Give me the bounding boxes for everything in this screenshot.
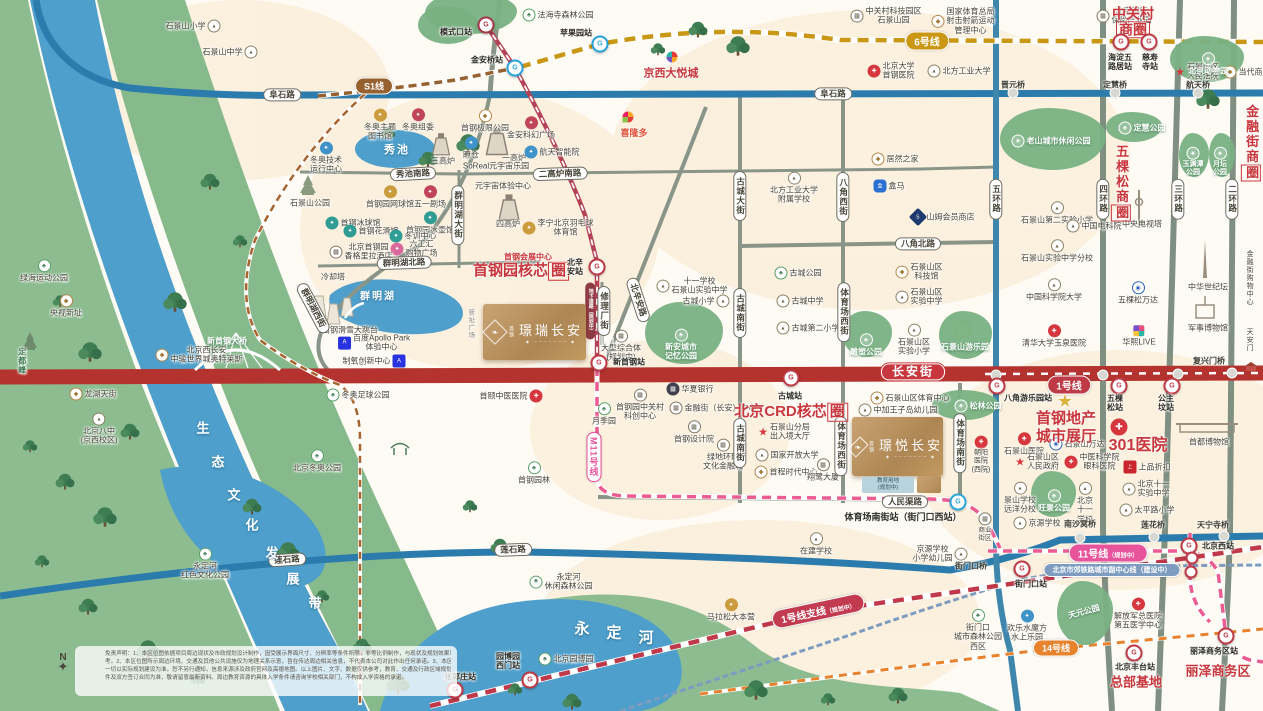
park-area bbox=[418, 6, 478, 44]
poi-新址广场: 新址广场 bbox=[466, 309, 474, 339]
station-icon-园博园西门站: G bbox=[522, 672, 539, 689]
poi-山姆会员商店: S山姆会员商店 bbox=[912, 211, 975, 224]
poi-金融街购物中心: 金融街购物中心 bbox=[1245, 250, 1253, 306]
disclaimer-line: 考。2、本区位图所示周边环境、交通及其他公共设施仅为地理关系示意，旨在传达周边相… bbox=[105, 658, 451, 666]
metro-line-badge-6号线: 6号线 bbox=[905, 32, 949, 51]
poi-label: 永定河红色文化公园 bbox=[181, 562, 229, 581]
poi-label: 石景山区体育中心 bbox=[886, 393, 950, 402]
poi-label: 中国电科院 bbox=[1082, 221, 1122, 230]
station-label-北京丰台站: 北京丰台站 bbox=[1115, 662, 1155, 671]
poi-龙湖天街: ◆龙湖天街 bbox=[70, 388, 117, 401]
poi-label: 五一剧场 bbox=[414, 199, 446, 208]
station-label-北辛安站: 北辛安站 bbox=[567, 258, 583, 276]
poi-军事博物馆: 军事博物馆 bbox=[1188, 323, 1228, 332]
poi-石景山分局: ★石景山分局出入境大厅 bbox=[758, 423, 810, 442]
venue-icon: ◆ bbox=[755, 466, 768, 479]
flower-icon bbox=[623, 112, 634, 123]
poi-制氧创新中心: 制氧创新中心A bbox=[343, 355, 406, 368]
tree-icon: ♣ bbox=[327, 389, 340, 402]
poi-冬奥足球公园: ♣冬奥足球公园 bbox=[327, 389, 390, 402]
treeW-icon: ♣ bbox=[1012, 135, 1025, 148]
land-use-box bbox=[917, 476, 941, 493]
poi-label: 石景山公园 bbox=[290, 198, 330, 207]
river-name-char: 永 bbox=[574, 618, 589, 639]
road-label-八角北路: 八角北路 bbox=[895, 237, 941, 250]
river-name-char: 定 bbox=[606, 622, 621, 643]
road-label-群明湖西街: 群明湖西街 bbox=[294, 281, 331, 335]
poi-商业: ▦商业街区 bbox=[979, 512, 992, 541]
disclaimer-line: 免责声明：1、本区位图依据项目周边现状及市政规划设计制作，因受展示界面尺寸、分辨… bbox=[105, 650, 451, 658]
road-label-北辛安路: 北辛安路 bbox=[625, 276, 652, 324]
tree-icon: ♣ bbox=[528, 461, 541, 474]
venue-icon: ◆ bbox=[872, 153, 885, 166]
poi-label: 京源学校 bbox=[1029, 518, 1061, 527]
bldg-icon: ▦ bbox=[851, 10, 864, 23]
poi-label: 老山城市休闲公园 bbox=[1027, 136, 1091, 145]
poi-label: 国家体育总局射击射箭运动管理中心 bbox=[947, 7, 995, 35]
station-label-园博园西门站: 园博园西门站 bbox=[496, 652, 520, 670]
station-icon-公主坟站: G bbox=[1164, 378, 1181, 395]
station-label-街门口站: 街门口站 bbox=[1015, 579, 1047, 588]
venue-icon: ◆ bbox=[70, 388, 83, 401]
tree-icon: ♣ bbox=[199, 548, 212, 561]
station-icon-副中心线站2 bbox=[1185, 566, 1198, 579]
poi-label: 金安科幻广场 bbox=[507, 130, 555, 139]
poi-北京园博园: ♣北京园博园 bbox=[539, 653, 594, 666]
treeW-icon: ♣ bbox=[955, 400, 968, 413]
poi-景山学校: ▴景山学校远洋分校 bbox=[1004, 482, 1036, 515]
poi-label: 北京冬奥公园 bbox=[293, 463, 341, 472]
bridge-label-街门口桥: 街门口桥 bbox=[955, 561, 987, 572]
disclaimer-line: 一切以实际规划建设为准，恕不另行通知，信息来源涉及政府官网及高德地图。以上图片、… bbox=[105, 666, 451, 674]
metro-line-badge-北京市郊铁路城市副中心线（建设中）: 北京市郊铁路城市副中心线（建设中） bbox=[1044, 563, 1181, 577]
poi-label: 新安城市记忆公园 bbox=[665, 343, 697, 362]
poi-label: 雕塑公园 bbox=[850, 347, 882, 356]
poi-label: 中关村科技园区石景山园 bbox=[866, 7, 922, 26]
hosp-icon: ✚ bbox=[530, 390, 543, 403]
hosp-icon: ✚ bbox=[1048, 324, 1061, 337]
baidu-icon: A bbox=[338, 337, 351, 350]
wanda-icon: ◉ bbox=[1132, 281, 1145, 294]
poi-首钢极限公园: ◆首钢极限公园 bbox=[461, 109, 509, 132]
poi-玉渊潭: ♣玉渊潭公园 bbox=[1183, 147, 1204, 178]
treeW-icon: ♣ bbox=[860, 333, 873, 346]
station-label-新首钢站: 新首钢站 bbox=[613, 357, 645, 366]
road-label-秀池南路: 秀池南路 bbox=[390, 166, 437, 182]
poi-label: 月坛公园 bbox=[1213, 161, 1227, 178]
poi-label: 古城公园 bbox=[790, 268, 822, 277]
station-icon-五棵松站: G bbox=[1111, 378, 1128, 395]
poi-label: 中医科学院眼科医院 bbox=[1080, 453, 1120, 472]
poi-label: 石景山小学 bbox=[166, 21, 206, 30]
redv-icon: ✦ bbox=[424, 185, 437, 198]
road-label-八角西街: 八角西街 bbox=[836, 172, 849, 222]
poi-永定河: ♣永定河红色文化公园 bbox=[181, 548, 229, 581]
poi-label: 旺景公园 bbox=[1038, 503, 1070, 512]
poi-元宇宙体验中心: 元宇宙体验中心 bbox=[475, 181, 531, 190]
hosp-icon: ✚ bbox=[1065, 456, 1078, 469]
poi-定慧公园: ♣定慧公园 bbox=[1119, 122, 1166, 135]
gold-star-icon: ★ bbox=[1058, 393, 1071, 410]
school-icon: ▴ bbox=[92, 413, 105, 426]
park-area bbox=[939, 311, 992, 359]
station-label-北京西站: 北京西站 bbox=[1202, 541, 1234, 550]
star-icon: ★ bbox=[1175, 66, 1185, 79]
poi-label: 首钢园中关村科创中心 bbox=[616, 403, 664, 422]
venue-icon: ◆ bbox=[479, 109, 492, 122]
poi-上品折扣: 上上品折扣 bbox=[1124, 461, 1171, 474]
school-icon: ▴ bbox=[859, 404, 872, 417]
teal-icon: ✦ bbox=[424, 211, 437, 224]
poi-太平路小学: ▴太平路小学 bbox=[1120, 504, 1175, 517]
poi-金安科幻广场: ✦金安科幻广场 bbox=[507, 116, 555, 139]
bldg-icon: ▦ bbox=[330, 246, 343, 259]
poi-label: 金融街购物中心 bbox=[1245, 250, 1253, 306]
treeW-icon: ♣ bbox=[1187, 147, 1200, 160]
bldg-icon: ▦ bbox=[817, 458, 830, 471]
poi-马拉松大本营: ✦马拉松大本营 bbox=[707, 598, 755, 621]
property-card-璟悦长安: ❧首钢璟悦长安◆ ─────── ◆ bbox=[852, 417, 943, 476]
bluev-icon: ✦ bbox=[465, 136, 478, 149]
poi-永定河: ♣永定河休闲森林公园 bbox=[530, 573, 593, 592]
poi-SoReal元宇宙乐园: SoReal元宇宙乐园 bbox=[463, 161, 529, 170]
tree-icon: ♣ bbox=[311, 449, 324, 462]
hosp-icon: ✚ bbox=[1132, 598, 1145, 611]
road-label-二高炉南路: 二高炉南路 bbox=[533, 166, 588, 181]
poi-首都博物馆: 首都博物馆 bbox=[1189, 437, 1229, 446]
poi-label: 十一学校石景山实验中学 bbox=[672, 277, 728, 296]
station-icon-副中心线站 bbox=[1186, 552, 1199, 565]
water-label-秀池: 秀池 bbox=[384, 141, 410, 157]
leaf-logo-icon: ❧ bbox=[482, 319, 507, 344]
bldg-icon: ▦ bbox=[615, 330, 628, 343]
poi-label: 北京园博园 bbox=[554, 654, 594, 663]
school-icon: ▴ bbox=[908, 324, 921, 337]
school-icon: ▴ bbox=[1014, 482, 1027, 495]
metro-line-badge-M11号线: M11号线 bbox=[587, 432, 602, 482]
poi-label: 北京大学首钢医院 bbox=[883, 62, 915, 81]
poi-pinwheel bbox=[667, 52, 678, 63]
metro-line-badge-14号线: 14号线 bbox=[1033, 640, 1079, 657]
poi-label: 冬奥技术运行中心 bbox=[310, 156, 342, 175]
redv-icon: ✦ bbox=[525, 116, 538, 129]
school-icon: ▴ bbox=[1048, 278, 1061, 291]
bank-icon: ▦ bbox=[667, 383, 680, 396]
station-icon-街门口站: G bbox=[1014, 561, 1031, 578]
poi-label: 首钢极限公园 bbox=[461, 123, 509, 132]
road-label-体育场南街: 体育场南街 bbox=[953, 413, 966, 473]
tree-icon: ♣ bbox=[38, 259, 51, 272]
road-junction-dot bbox=[1098, 370, 1109, 381]
poi-label: 玉渊潭公园 bbox=[1183, 161, 1204, 178]
bluev-icon: ✦ bbox=[1021, 610, 1034, 623]
poi-label: 山姆会员商店 bbox=[927, 212, 975, 221]
road-junction-dot bbox=[1227, 368, 1238, 379]
poi-旺景公园: ♣旺景公园 bbox=[1038, 489, 1070, 512]
poi-label: 中加王子岛幼儿园 bbox=[874, 405, 938, 414]
poi-label: 中国科学院大学 bbox=[1026, 292, 1082, 301]
commercial-zone-京西大悦城: 京西大悦城 bbox=[644, 68, 699, 81]
poi-label: 北京动物园 bbox=[1188, 66, 1228, 75]
station-label-金安桥站: 金安桥站 bbox=[471, 55, 503, 64]
school-icon: ▴ bbox=[788, 172, 801, 185]
poi-北京动物园: ♣北京动物园 bbox=[1188, 52, 1228, 75]
road-label-人民渠路: 人民渠路 bbox=[882, 495, 928, 508]
poi-首颐中医医院: 首颐中医医院✚ bbox=[480, 390, 543, 403]
bldg-icon: ▦ bbox=[688, 420, 701, 433]
bldg-icon: ▦ bbox=[670, 402, 683, 415]
poi-label: 元宇宙体验中心 bbox=[475, 181, 531, 190]
poi-松林公园: ♣松林公园 bbox=[955, 400, 1002, 413]
poi-label: SoReal元宇宙乐园 bbox=[463, 161, 529, 170]
station-icon-苹果园站: G bbox=[592, 36, 609, 53]
leaf-logo-icon: ❧ bbox=[847, 436, 868, 457]
poi-label: 松林公园 bbox=[970, 401, 1002, 410]
poi-石景山小学: 石景山小学▴ bbox=[166, 20, 221, 33]
poi-首钢园林: ♣首钢园林 bbox=[518, 461, 550, 484]
eco-corridor-char: 展 bbox=[286, 569, 299, 588]
poi-label: 绿海运动公园 bbox=[20, 273, 68, 282]
poi-label: 太平路小学 bbox=[1135, 505, 1175, 514]
poi-label: 制氧创新中心 bbox=[343, 356, 391, 365]
poi-新首钢大桥: 新首钢大桥 bbox=[207, 336, 247, 345]
huaxi-icon bbox=[1134, 325, 1145, 336]
poi-label: 石景山分局出入境大厅 bbox=[770, 423, 810, 442]
road-label-长安街: 长安街 bbox=[881, 363, 945, 380]
poi-李宁北京羽毛球: ✦李宁北京羽毛球体育馆 bbox=[523, 219, 594, 238]
poi-冬奥技术: ✦冬奥技术运行中心 bbox=[310, 142, 342, 175]
station-icon-北京丰台站: G bbox=[1126, 645, 1143, 662]
poi-label: 四高炉 bbox=[496, 219, 520, 228]
poi-label: 清华大学玉泉医院 bbox=[1022, 338, 1086, 347]
poi-绿海运动公园: ♣绿海运动公园 bbox=[20, 259, 68, 282]
gold-icon: ✦ bbox=[725, 598, 738, 611]
tree-icon: ♣ bbox=[523, 9, 536, 22]
road-label-修理厂街: 修理厂街 bbox=[597, 286, 610, 336]
poi-月季园: ♣月季园 bbox=[592, 402, 616, 425]
bldg-icon: ▦ bbox=[979, 512, 992, 525]
hosp-icon: ✚ bbox=[868, 65, 881, 78]
poi-label: 李宁北京羽毛球体育馆 bbox=[538, 219, 594, 238]
road-junction-dot bbox=[1110, 88, 1121, 99]
poi-label: 定都峰 bbox=[17, 348, 26, 375]
poi-冬奥主题: ✦冬奥主题图书馆 bbox=[364, 109, 396, 142]
poi-京源学校: ▴京源学校 bbox=[1014, 517, 1061, 530]
venue-icon: ◆ bbox=[932, 15, 945, 28]
road-label-阜石路: 阜石路 bbox=[263, 88, 301, 101]
road-junction-dot bbox=[1219, 531, 1230, 542]
school-icon: ▴ bbox=[657, 280, 670, 293]
poi-label: 上品折扣 bbox=[1139, 462, 1171, 471]
metro-line-badge-11号线: 11号线（规划中） bbox=[1069, 544, 1148, 563]
poi-北京十一: ▴北京十一实验中学 bbox=[1123, 480, 1170, 499]
poi-flower bbox=[623, 112, 634, 123]
poi-label: 天安门 bbox=[1245, 328, 1253, 352]
poi-label: 石景山中学 bbox=[203, 47, 243, 56]
pinwheel-icon bbox=[667, 52, 678, 63]
eco-corridor-char: 带 bbox=[308, 593, 321, 612]
disclaimer-line: 件及双方签订合同为准，敬请留意最新资料。周边教育资源的具体入学条件请咨询学校相关… bbox=[105, 674, 451, 682]
poi-古城小学: 古城小学▴ bbox=[683, 295, 730, 308]
poi-label: 北京十一实验中学 bbox=[1138, 480, 1170, 499]
commercial-zone-首钢园核芯: 首钢园核芯圈 bbox=[473, 262, 569, 281]
station-icon-北辛安站: G bbox=[589, 259, 606, 276]
poi-北京八中: ▴北京八中(京西校区) bbox=[80, 413, 117, 446]
poi-label: 当代商城 bbox=[1239, 67, 1263, 76]
treeW-icon: ♣ bbox=[1214, 147, 1227, 160]
poi-雕塑公园: ♣雕塑公园 bbox=[850, 333, 882, 356]
poi-label: 古城中学 bbox=[792, 296, 824, 305]
poi-十一学校: ▴十一学校石景山实验中学 bbox=[657, 277, 728, 296]
poi-hospbig: ✚ bbox=[1111, 419, 1128, 436]
treeW-icon: ♣ bbox=[1048, 489, 1061, 502]
station-icon-体育场南街站（街门口西站）: G bbox=[950, 494, 967, 511]
poi-label: 华夏银行 bbox=[682, 384, 714, 393]
school-icon: ▴ bbox=[717, 295, 730, 308]
poi-label: 三高炉 bbox=[431, 156, 455, 165]
poi-在建学校: ▴在建学校 bbox=[800, 532, 832, 555]
poi-清华大学玉泉医院: ✚清华大学玉泉医院 bbox=[1022, 324, 1086, 347]
school-icon: ▴ bbox=[245, 46, 258, 59]
road-label-群明湖北路: 群明湖北路 bbox=[377, 255, 432, 270]
poi-label: 冬奥组委 bbox=[402, 122, 434, 131]
station-icon-慈寿寺站: G bbox=[1141, 34, 1158, 51]
teal-icon: ✦ bbox=[326, 217, 339, 230]
star-icon: ★ bbox=[758, 426, 768, 439]
poi-label: 军事博物馆 bbox=[1188, 323, 1228, 332]
poi-朝阳: ✚朝阳医院(西院) bbox=[972, 436, 991, 475]
commercial-zone-丽泽商务区: 丽泽商务区 bbox=[1185, 665, 1250, 680]
station-label-慈寿寺站: 慈寿寺站 bbox=[1142, 53, 1158, 71]
poi-法海寺森林公园: ♣法海寺森林公园 bbox=[523, 9, 594, 22]
station-icon-八角游乐园站: G bbox=[989, 378, 1006, 395]
poi-label: 朝阳医院(西院) bbox=[972, 450, 991, 475]
school-icon: ▴ bbox=[777, 295, 790, 308]
tree-icon: ♣ bbox=[530, 576, 543, 589]
poi-首钢园中关村: ▦首钢园中关村科创中心 bbox=[616, 389, 664, 422]
poi-label: 古城第二小学 bbox=[792, 323, 840, 332]
poi-中加王子岛幼儿园: ▴中加王子岛幼儿园 bbox=[859, 404, 938, 417]
poi-label: 石景山实验中学分校 bbox=[1021, 253, 1093, 262]
poi-label: 京源学校小学幼儿园 bbox=[913, 545, 953, 564]
poi-新安城市: ♣新安城市记忆公园 bbox=[665, 329, 697, 362]
poi-label: 石景山区实验中学 bbox=[911, 288, 943, 307]
bldg-icon: ▦ bbox=[717, 439, 730, 452]
poi-label: 北方工业大学 bbox=[943, 66, 991, 75]
brand-prefix: 首钢 bbox=[508, 326, 515, 338]
hosp-icon: ✚ bbox=[1111, 419, 1128, 436]
eco-corridor-char: 态 bbox=[211, 452, 224, 471]
poi-label: 解放军总医院第五医学中心 bbox=[1114, 612, 1162, 631]
poi-石景山游乐园: 石景山游乐园 bbox=[941, 342, 989, 351]
station-icon-金安桥站: G bbox=[507, 60, 524, 77]
school-icon: ▴ bbox=[756, 449, 769, 462]
metro-line-badge-S1线: S1线 bbox=[355, 78, 393, 95]
road-label-地下道路（规划中）: 地下道路（规划中） bbox=[585, 283, 595, 340]
poi-天安门: 天安门 bbox=[1245, 328, 1253, 352]
poi-五棵松万达: ◉五棵松万达 bbox=[1118, 281, 1158, 304]
station-icon-丽泽商务区站: G bbox=[1218, 628, 1235, 645]
road-label-二环路: 二环路 bbox=[1225, 179, 1238, 220]
gold-icon: ✦ bbox=[374, 109, 387, 122]
hosp-icon: ✚ bbox=[974, 436, 987, 449]
road-junction-dot bbox=[1008, 88, 1019, 99]
poi-中国科学院大学: ▴中国科学院大学 bbox=[1026, 278, 1082, 301]
station-label-海淀五路居站: 海淀五路居站 bbox=[1108, 53, 1132, 71]
station-label-模式口站: 模式口站 bbox=[440, 27, 472, 36]
venue-icon: ◆ bbox=[60, 294, 73, 307]
poi-label: 新首钢大桥 bbox=[207, 336, 247, 345]
school-icon: ▴ bbox=[1014, 517, 1027, 530]
station-label-古城站: 古城站 bbox=[778, 391, 802, 400]
bldg-icon: ▦ bbox=[634, 389, 647, 402]
property-name: 璟瑞长安 bbox=[519, 320, 583, 339]
commercial-zone-五棵松商: 五棵松商圈 bbox=[1111, 145, 1131, 222]
station-icon-古城站: G bbox=[783, 370, 800, 387]
bridge-label-南沙窝桥: 南沙窝桥 bbox=[1064, 519, 1096, 530]
school-icon: ▴ bbox=[777, 322, 790, 335]
school-icon: ▴ bbox=[1067, 220, 1080, 233]
tree-icon: ♣ bbox=[539, 653, 552, 666]
poi-华夏银行: ▦华夏银行 bbox=[667, 383, 714, 396]
station-label-公主坟站: 公主坟站 bbox=[1158, 394, 1174, 412]
commercial-zone-喜隆多: 喜隆多 bbox=[620, 128, 647, 138]
poi-label: 央视新址 bbox=[50, 308, 82, 317]
poi-label: 新址广场 bbox=[466, 309, 474, 339]
poi-老山城市休闲公园: ♣老山城市休闲公园 bbox=[1012, 135, 1091, 148]
poi-label: 古城小学 bbox=[683, 296, 715, 305]
poi-label: 北方工业大学附属学校 bbox=[770, 186, 818, 205]
eco-corridor-char: 发 bbox=[265, 543, 278, 562]
poi-label: 马拉松大本营 bbox=[707, 612, 755, 621]
bridge-label-复兴门桥: 复兴门桥 bbox=[1193, 356, 1225, 367]
commercial-zone-首钢会展中心: 首钢会展中心 bbox=[504, 252, 552, 261]
road-label-体育场西街: 体育场西街 bbox=[834, 416, 847, 476]
poi-label: 街门口城市森林公园西区 bbox=[954, 623, 1002, 651]
treeW-icon: ♣ bbox=[1119, 122, 1132, 135]
bluev-icon: ✦ bbox=[320, 142, 333, 155]
poi-label: 首钢园网球馆 bbox=[366, 199, 414, 208]
poi-盒马: 盒盒马 bbox=[874, 180, 905, 193]
eco-corridor-char: 化 bbox=[245, 515, 258, 534]
poi-解放军总医院: ✚解放军总医院第五医学中心 bbox=[1114, 598, 1162, 631]
poi-定都峰: 定都峰 bbox=[17, 348, 26, 375]
station-label-八角游乐园站: 八角游乐园站 bbox=[1004, 393, 1052, 402]
school-icon: ▴ bbox=[928, 65, 941, 78]
station-label-五棵松站: 五棵松站 bbox=[1107, 394, 1123, 412]
bridge-label-天宁寺桥: 天宁寺桥 bbox=[1197, 520, 1229, 531]
poi-label: 石景山游乐园 bbox=[941, 342, 989, 351]
poi-label: 商业街区 bbox=[979, 526, 992, 541]
poi-当代商城: ◆当代商城 bbox=[1224, 66, 1263, 79]
eco-corridor-char: 生 bbox=[196, 418, 209, 437]
poi-label: 首钢园林 bbox=[518, 475, 550, 484]
poi-欢乐水魔方: ✦欢乐水魔方水上乐园 bbox=[1007, 610, 1047, 643]
tree-icon: ♣ bbox=[972, 609, 985, 622]
poi-label: 五棵松万达 bbox=[1118, 295, 1158, 304]
poi-label: 航天智能院 bbox=[540, 147, 580, 156]
road-label-体育场西街: 体育场西街 bbox=[837, 282, 850, 342]
baidu-icon: A bbox=[393, 355, 406, 368]
poi-label: 首颐中医医院 bbox=[480, 391, 528, 400]
poi-百度Apollo Park: A百度Apollo Park体验中心 bbox=[338, 334, 410, 353]
venue-icon: ◆ bbox=[156, 349, 169, 362]
poi-冬奥组委: ✦冬奥组委 bbox=[402, 108, 434, 131]
poi-北京大学: ✚北京大学首钢医院 bbox=[868, 62, 915, 81]
school-icon: ▴ bbox=[896, 291, 909, 304]
commercial-zone-金融街商: 金融街商圈 bbox=[1241, 105, 1261, 182]
location-map: 石景山小学▴石景山中学▴♣法海寺森林公园▦北京银行保险产业园▦中关村科技园区石景… bbox=[0, 0, 1263, 711]
